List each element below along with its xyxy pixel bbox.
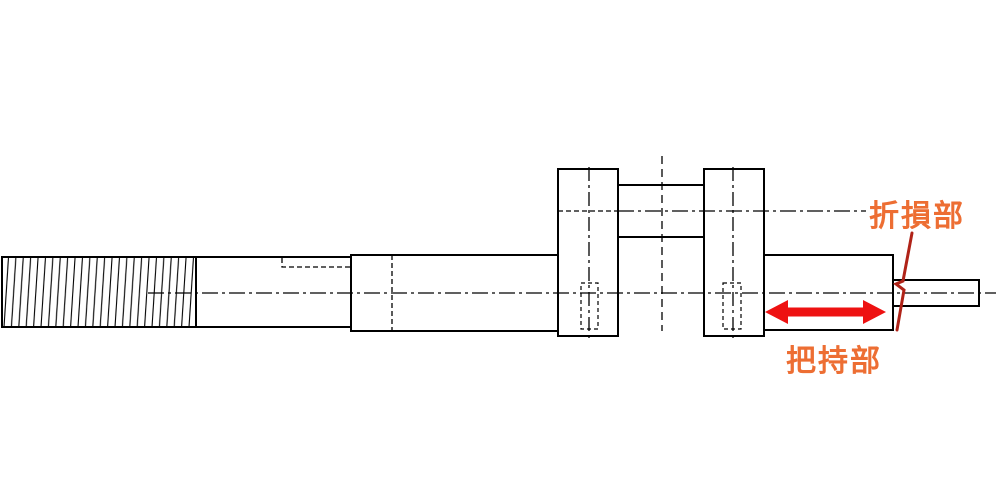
fracture-mark-icon <box>896 233 912 330</box>
threaded-section <box>2 257 196 327</box>
grip-label: 把持部 <box>786 344 882 379</box>
drawing-canvas: 折損部 把持部 <box>0 0 1001 480</box>
crankshaft-drawing: 折損部 把持部 <box>0 0 1001 480</box>
crank-web-left <box>558 169 618 336</box>
grip-arrow-icon <box>765 300 886 324</box>
shaft-section-2 <box>196 257 351 327</box>
crank-web-right <box>704 169 764 336</box>
fracture-label: 折損部 <box>869 199 965 234</box>
hidden-step-line <box>282 258 351 267</box>
